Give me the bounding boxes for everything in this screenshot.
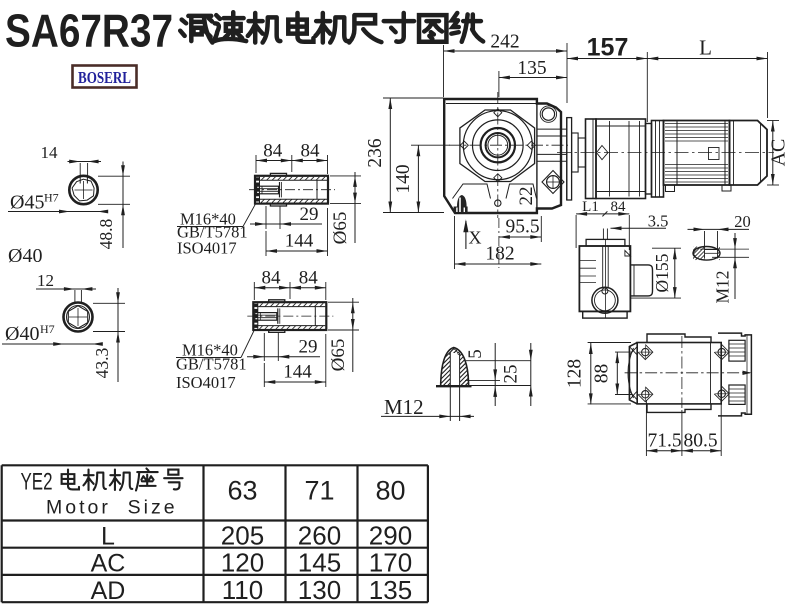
svg-text:144: 144 [285,231,314,252]
svg-text:29: 29 [299,337,318,358]
svg-text:120: 120 [221,548,264,578]
svg-text:Ø40: Ø40 [5,323,39,345]
svg-text:YE2: YE2 [21,469,53,496]
svg-text:95.5: 95.5 [505,217,539,238]
svg-text:ISO4017: ISO4017 [176,373,236,392]
svg-text:128: 128 [565,359,586,388]
svg-text:290: 290 [369,520,412,550]
svg-text:25: 25 [501,365,522,384]
svg-text:20: 20 [734,212,751,231]
svg-text:Ø65: Ø65 [330,212,351,245]
svg-text:Motor Size: Motor Size [46,497,178,519]
svg-text:145: 145 [298,548,341,578]
svg-text:205: 205 [221,520,264,550]
svg-text:Ø155: Ø155 [652,253,672,292]
svg-text:AC: AC [91,550,126,578]
svg-text:ISO4017: ISO4017 [177,239,237,258]
svg-text:29: 29 [300,204,319,225]
svg-text:SA67R37: SA67R37 [5,5,173,57]
svg-text:12: 12 [37,271,54,290]
svg-text:110: 110 [222,575,263,605]
svg-text:M12: M12 [384,395,424,419]
svg-text:84: 84 [611,199,627,215]
svg-text:157: 157 [587,34,629,62]
svg-text:84: 84 [299,268,319,289]
svg-text:Ø40: Ø40 [8,245,42,267]
svg-text:182: 182 [485,244,514,265]
svg-text:AC: AC [768,139,790,167]
svg-text:5: 5 [465,349,486,359]
svg-text:260: 260 [298,520,341,550]
svg-text:63: 63 [227,476,257,506]
svg-text:84: 84 [263,141,283,162]
svg-text:GB/T5781: GB/T5781 [176,355,247,374]
svg-text:BOSERL: BOSERL [78,68,131,87]
svg-text:135: 135 [369,575,412,605]
svg-text:170: 170 [369,548,412,578]
svg-text:71: 71 [304,476,334,506]
svg-text:130: 130 [298,575,341,605]
svg-text:14: 14 [41,143,59,162]
svg-text:Ø65: Ø65 [328,339,349,372]
svg-text:22: 22 [516,187,537,206]
svg-text:H7: H7 [40,322,55,336]
svg-text:48.8: 48.8 [96,218,116,249]
svg-text:3.5: 3.5 [648,212,669,231]
svg-text:236: 236 [365,138,386,168]
svg-text:84: 84 [301,141,321,162]
svg-text:AD: AD [91,577,126,605]
svg-text:43.3: 43.3 [92,347,112,378]
svg-text:L1: L1 [582,199,599,215]
svg-text:X: X [469,228,482,248]
svg-text:Ø45: Ø45 [10,192,44,214]
svg-text:135: 135 [517,58,546,79]
svg-text:144: 144 [283,362,312,383]
svg-text:L: L [101,522,115,550]
svg-text:M12: M12 [713,270,733,303]
svg-text:71.5: 71.5 [647,431,681,452]
svg-text:84: 84 [262,268,282,289]
svg-text:242: 242 [490,32,519,53]
svg-text:L: L [699,36,712,60]
svg-text:88: 88 [592,364,613,384]
svg-text:80: 80 [375,476,405,506]
svg-text:140: 140 [393,164,414,193]
svg-text:H7: H7 [44,191,59,205]
svg-text:80.5: 80.5 [683,431,717,452]
